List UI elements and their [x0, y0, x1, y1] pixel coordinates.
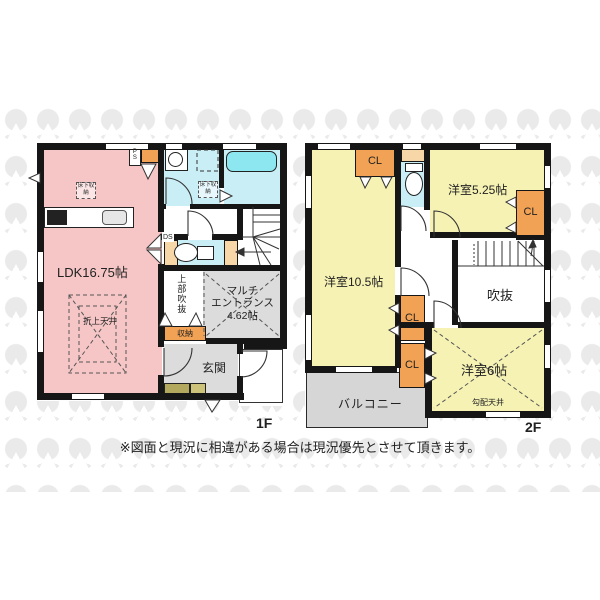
underfloor-storage-label-wash: 床下収納 [198, 181, 218, 198]
storage-label: 収納 [164, 329, 206, 338]
sloped-ceiling-label: 勾配天井 [472, 398, 504, 407]
upper-void-label: 上部吹抜 [176, 274, 186, 314]
closet-label-3: CL [399, 312, 425, 325]
underfloor-storage-label-ldk: 床下収納 [76, 182, 96, 199]
coffered-ceiling-label: 折上天井 [83, 317, 113, 327]
entrance-label: 玄関 [202, 362, 226, 376]
closet-label-1: CL [355, 155, 395, 168]
closet-label-2: CL [516, 206, 545, 219]
pipe-space-label: PS [131, 149, 138, 161]
multi-entrance-size-label: 4.62帖 [203, 310, 282, 322]
void-label: 吹抜 [487, 289, 513, 304]
disclaimer-text: ※図面と現況に相違がある場合は現況優先とさせて頂きます。 [0, 441, 600, 456]
room-5-25-label: 洋室5.25帖 [448, 184, 507, 198]
multi-entrance-label-2: エントランス [203, 297, 282, 309]
room-10-5-label: 洋室10.5帖 [324, 276, 383, 290]
floor2-label: 2F [525, 419, 541, 435]
stairs-2f [458, 240, 544, 266]
multi-entrance-label-1: マルチ [203, 285, 282, 297]
door-arcs [164, 178, 461, 377]
closet-label-4: CL [399, 359, 425, 372]
ldk-label: LDK16.75帖 [57, 266, 128, 281]
stairs-1f [236, 207, 280, 265]
room-6-label: 洋室6帖 [461, 364, 507, 379]
duct-space-label: DS [162, 234, 174, 242]
floorplan-page: LDK16.75帖 折上天井 床下収納 床下収納 上部吹抜 マルチ エントランス… [0, 0, 600, 600]
balcony-label: バルコニー [338, 398, 403, 412]
floor1-label: 1F [256, 415, 272, 431]
